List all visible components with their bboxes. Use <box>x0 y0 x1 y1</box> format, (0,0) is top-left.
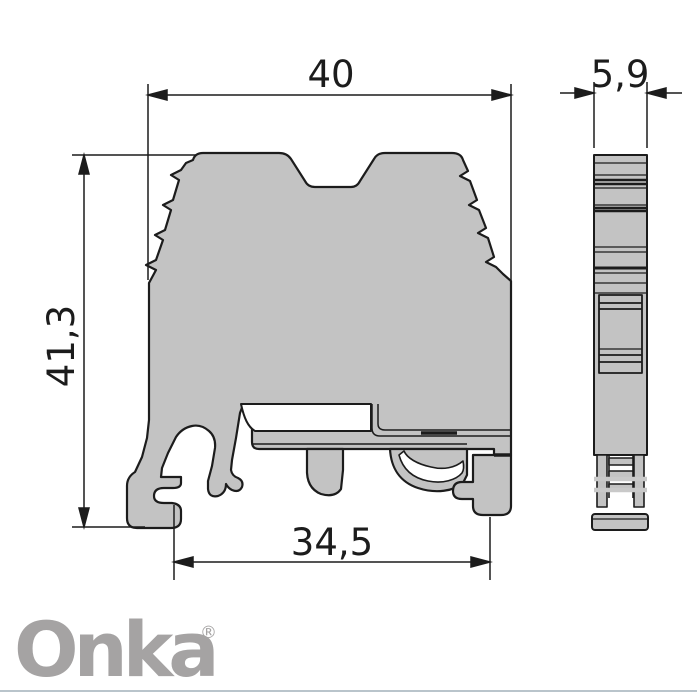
front-view-cutout <box>241 404 371 431</box>
dimension-top-width-label: 40 <box>296 56 366 93</box>
drawing-canvas: 40 5,9 41,3 34,5 Onka ® <box>0 0 697 697</box>
side-view-body <box>594 155 647 455</box>
front-view-center-hook <box>307 449 343 495</box>
arrowhead-top <box>79 155 89 174</box>
arrowhead-bottom <box>79 508 89 527</box>
arrowhead-left <box>174 557 193 567</box>
terminal-block-technical-drawing <box>0 0 697 697</box>
dimension-bottom-width-label: 34,5 <box>277 524 387 561</box>
side-view-clip <box>592 455 648 530</box>
side-view-base-plate <box>592 514 648 530</box>
arrowhead-right <box>471 557 490 567</box>
dimension-height-label: 41,3 <box>43 291 81 401</box>
onka-logo: Onka <box>14 612 215 688</box>
clip-rung-1 <box>609 458 633 465</box>
registered-trademark-symbol: ® <box>200 623 217 643</box>
side-view <box>592 155 648 530</box>
arrowhead-right <box>492 90 511 100</box>
front-view <box>127 153 511 528</box>
arrowhead-left <box>148 90 167 100</box>
footer-divider-line <box>0 690 697 692</box>
dimension-side-width-label: 5,9 <box>585 56 655 93</box>
